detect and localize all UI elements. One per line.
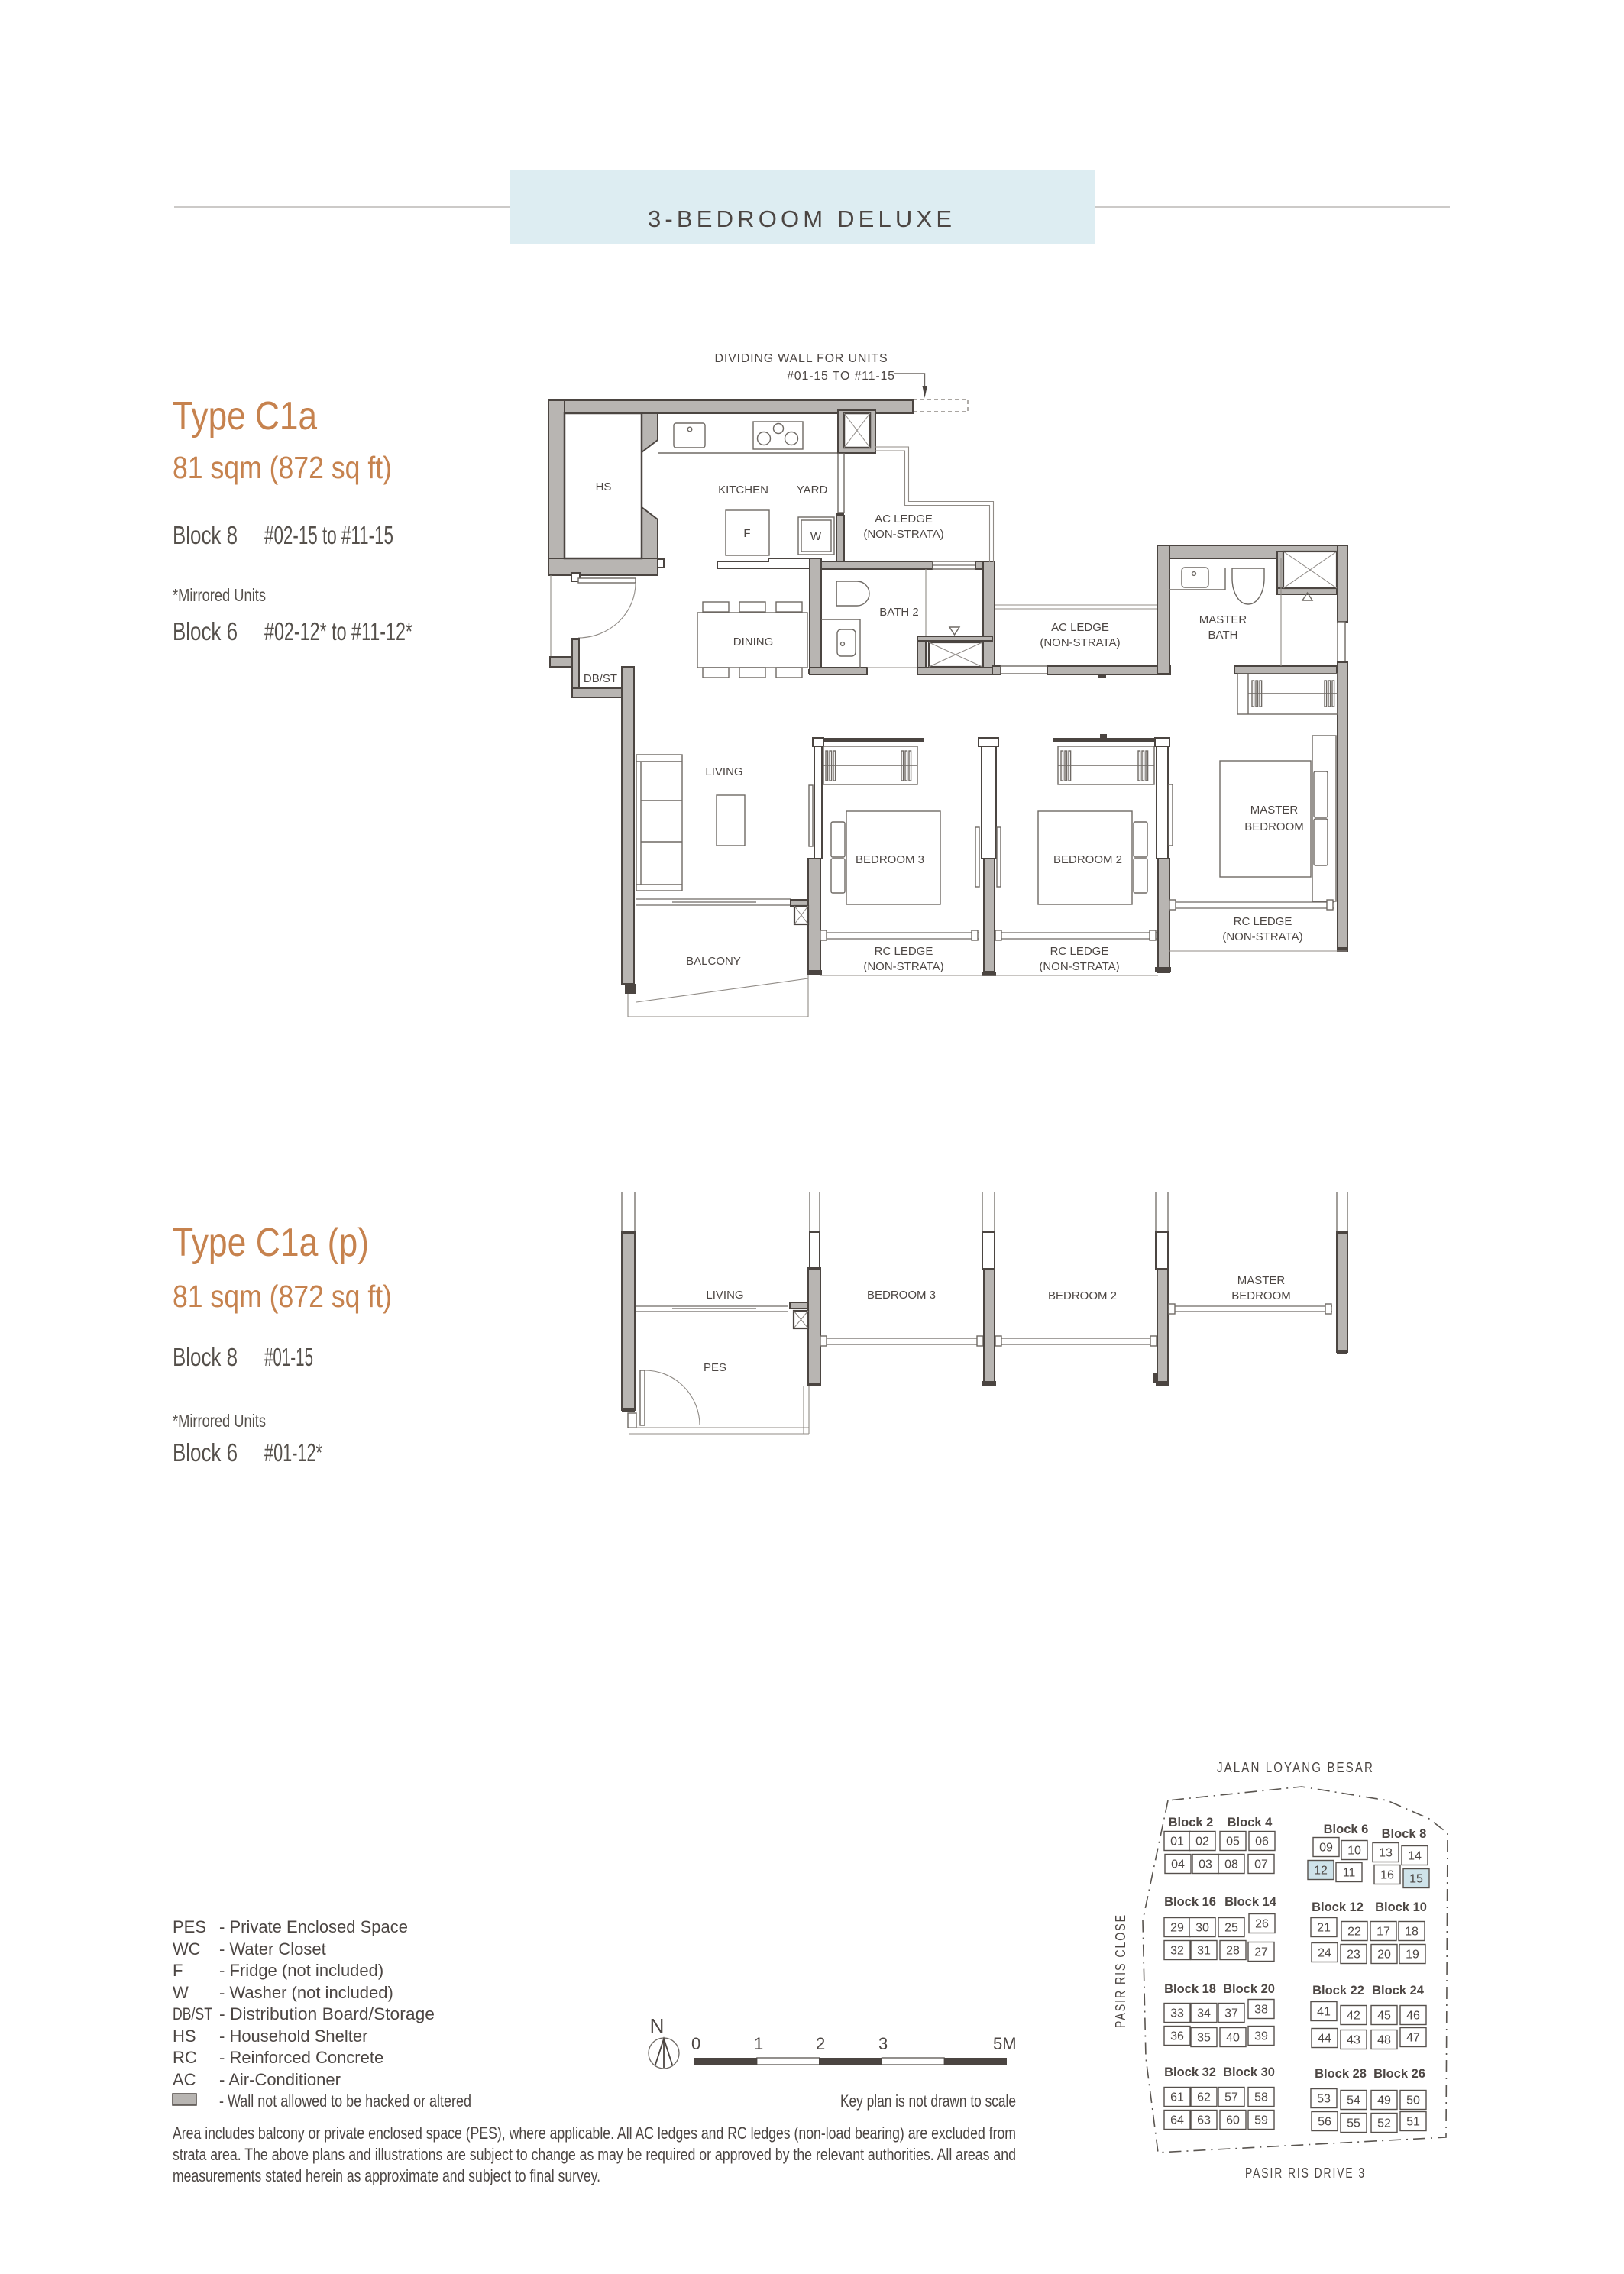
svg-text:56: 56 xyxy=(1318,2116,1331,2129)
svg-text:02: 02 xyxy=(1195,1836,1209,1849)
svg-text:PES: PES xyxy=(704,1361,726,1374)
svg-text:32: 32 xyxy=(1170,1945,1184,1958)
svg-text:KITCHEN: KITCHEN xyxy=(718,484,768,497)
svg-text:13: 13 xyxy=(1379,1847,1393,1860)
svg-text:(NON-STRATA): (NON-STRATA) xyxy=(1222,930,1302,943)
svg-text:42: 42 xyxy=(1347,2010,1360,2023)
svg-text:30: 30 xyxy=(1195,1922,1209,1935)
svg-text:07: 07 xyxy=(1254,1858,1268,1871)
svg-text:43: 43 xyxy=(1347,2034,1360,2047)
svg-text:strata area. The above plans a: strata area. The above plans and illustr… xyxy=(173,2145,1016,2164)
svg-text:- Washer (not included): - Washer (not included) xyxy=(219,1983,393,2002)
svg-text:09: 09 xyxy=(1319,1842,1333,1855)
svg-text:31: 31 xyxy=(1197,1945,1211,1958)
svg-text:39: 39 xyxy=(1254,2030,1268,2043)
svg-text:DB/ST: DB/ST xyxy=(173,2004,212,2023)
svg-text:LIVING: LIVING xyxy=(705,765,742,778)
svg-text:BATH 2: BATH 2 xyxy=(879,606,918,619)
svg-text:- Water Closet: - Water Closet xyxy=(219,1939,326,1959)
svg-text:46: 46 xyxy=(1406,2010,1420,2023)
svg-text:W: W xyxy=(173,1983,189,2002)
svg-text:21: 21 xyxy=(1317,1922,1331,1935)
svg-text:Key plan is not drawn to scale: Key plan is not drawn to scale xyxy=(840,2091,1016,2111)
svg-text:- Air-Conditioner: - Air-Conditioner xyxy=(219,2070,341,2089)
svg-text:40: 40 xyxy=(1226,2032,1240,2045)
svg-text:#01-12*: #01-12* xyxy=(264,1438,322,1467)
svg-text:LIVING: LIVING xyxy=(706,1289,743,1302)
svg-text:RC LEDGE: RC LEDGE xyxy=(1050,945,1109,958)
svg-text:59: 59 xyxy=(1254,2114,1268,2127)
svg-text:Block 22: Block 22 xyxy=(1312,1984,1364,1997)
svg-text:08: 08 xyxy=(1224,1858,1238,1871)
svg-text:#01-15: #01-15 xyxy=(264,1343,313,1371)
svg-text:AC LEDGE: AC LEDGE xyxy=(875,513,933,526)
svg-text:(NON-STRATA): (NON-STRATA) xyxy=(1040,636,1120,649)
svg-text:47: 47 xyxy=(1406,2032,1420,2045)
svg-text:36: 36 xyxy=(1170,2030,1184,2043)
svg-text:50: 50 xyxy=(1406,2094,1420,2107)
svg-text:28: 28 xyxy=(1226,1945,1240,1958)
svg-text:- Fridge (not included): - Fridge (not included) xyxy=(219,1961,383,1980)
svg-text:06: 06 xyxy=(1255,1836,1269,1849)
svg-text:64: 64 xyxy=(1170,2114,1184,2127)
svg-text:RC LEDGE: RC LEDGE xyxy=(1234,915,1292,928)
svg-text:#01-15 TO #11-15: #01-15 TO #11-15 xyxy=(787,370,895,383)
svg-text:24: 24 xyxy=(1318,1947,1331,1960)
svg-text:57: 57 xyxy=(1224,2091,1238,2104)
svg-text:3: 3 xyxy=(878,2034,888,2053)
svg-text:Block 6: Block 6 xyxy=(173,617,238,645)
svg-text:YARD: YARD xyxy=(797,484,828,497)
svg-text:5M: 5M xyxy=(993,2034,1017,2053)
svg-text:37: 37 xyxy=(1224,2007,1238,2020)
svg-text:WC: WC xyxy=(173,1939,201,1959)
svg-text:RC: RC xyxy=(173,2048,197,2067)
svg-text:BEDROOM 3: BEDROOM 3 xyxy=(867,1289,936,1302)
svg-text:Area includes balcony or priva: Area includes balcony or private enclose… xyxy=(173,2124,1016,2143)
svg-text:15: 15 xyxy=(1409,1873,1423,1886)
svg-text:20: 20 xyxy=(1377,1949,1391,1962)
svg-text:HS: HS xyxy=(173,2027,196,2046)
svg-text:11: 11 xyxy=(1343,1867,1356,1880)
svg-text:27: 27 xyxy=(1254,1946,1268,1959)
svg-text:F: F xyxy=(173,1961,183,1980)
svg-text:Block 8: Block 8 xyxy=(173,1343,238,1371)
svg-text:DIVIDING WALL FOR UNITS: DIVIDING WALL FOR UNITS xyxy=(714,352,888,365)
svg-text:54: 54 xyxy=(1347,2094,1360,2107)
svg-text:#02-12* to #11-12*: #02-12* to #11-12* xyxy=(264,617,412,645)
svg-text:(NON-STRATA): (NON-STRATA) xyxy=(863,528,943,541)
svg-text:measurements stated herein as: measurements stated herein as approximat… xyxy=(173,2166,600,2185)
svg-text:33: 33 xyxy=(1170,2007,1184,2020)
svg-text:53: 53 xyxy=(1317,2093,1331,2106)
svg-text:03: 03 xyxy=(1199,1858,1212,1871)
svg-text:12: 12 xyxy=(1314,1865,1328,1878)
svg-text:Block 2: Block 2 xyxy=(1169,1816,1214,1829)
svg-text:BALCONY: BALCONY xyxy=(686,955,741,968)
svg-text:(NON-STRATA): (NON-STRATA) xyxy=(863,960,943,973)
svg-text:W: W xyxy=(810,530,822,543)
svg-text:MASTER: MASTER xyxy=(1237,1274,1286,1287)
svg-text:BEDROOM: BEDROOM xyxy=(1231,1289,1291,1302)
svg-text:05: 05 xyxy=(1226,1836,1240,1849)
svg-text:Block 8: Block 8 xyxy=(173,521,238,549)
svg-text:*Mirrored Units: *Mirrored Units xyxy=(173,585,266,605)
svg-text:51: 51 xyxy=(1406,2116,1420,2129)
svg-text:HS: HS xyxy=(596,480,612,493)
svg-text:38: 38 xyxy=(1254,2004,1268,2017)
svg-text:Block 26: Block 26 xyxy=(1373,2067,1425,2081)
svg-text:RC LEDGE: RC LEDGE xyxy=(875,945,933,958)
svg-text:29: 29 xyxy=(1170,1922,1184,1935)
svg-text:81 sqm (872 sq ft): 81 sqm (872 sq ft) xyxy=(173,450,392,485)
svg-text:Block 6: Block 6 xyxy=(1324,1823,1369,1836)
svg-text:26: 26 xyxy=(1255,1918,1269,1931)
svg-text:BATH: BATH xyxy=(1208,629,1238,642)
svg-text:17: 17 xyxy=(1377,1926,1390,1939)
svg-text:BEDROOM 3: BEDROOM 3 xyxy=(856,853,924,866)
svg-text:BEDROOM: BEDROOM xyxy=(1244,820,1304,833)
svg-text:- Distribution Board/Storage: - Distribution Board/Storage xyxy=(219,2004,435,2023)
svg-text:0: 0 xyxy=(691,2034,700,2053)
svg-text:- Private Enclosed Space: - Private Enclosed Space xyxy=(219,1917,408,1936)
svg-text:Block 20: Block 20 xyxy=(1223,1982,1275,1996)
svg-text:DINING: DINING xyxy=(733,636,774,649)
svg-text:62: 62 xyxy=(1197,2091,1211,2104)
svg-text:48: 48 xyxy=(1377,2034,1391,2047)
svg-text:DB/ST: DB/ST xyxy=(584,672,617,685)
svg-text:60: 60 xyxy=(1226,2114,1240,2127)
svg-text:19: 19 xyxy=(1406,1949,1419,1962)
svg-text:44: 44 xyxy=(1318,2033,1331,2046)
svg-text:MASTER: MASTER xyxy=(1250,804,1299,817)
svg-text:01: 01 xyxy=(1170,1836,1184,1849)
svg-text:Block 32: Block 32 xyxy=(1164,2065,1216,2079)
svg-text:N: N xyxy=(650,2014,665,2037)
svg-text:Block 30: Block 30 xyxy=(1223,2065,1275,2079)
svg-text:(NON-STRATA): (NON-STRATA) xyxy=(1039,960,1119,973)
svg-text:61: 61 xyxy=(1170,2091,1184,2104)
svg-text:35: 35 xyxy=(1197,2032,1211,2045)
svg-text:Block 12: Block 12 xyxy=(1312,1900,1364,1914)
svg-text:49: 49 xyxy=(1377,2094,1391,2107)
svg-text:58: 58 xyxy=(1254,2091,1268,2104)
svg-text:81 sqm (872 sq ft): 81 sqm (872 sq ft) xyxy=(173,1279,392,1314)
svg-text:41: 41 xyxy=(1317,2006,1331,2019)
svg-text:55: 55 xyxy=(1347,2117,1360,2130)
svg-text:45: 45 xyxy=(1377,2010,1391,2023)
svg-text:#02-15 to #11-15: #02-15 to #11-15 xyxy=(264,521,393,549)
svg-text:10: 10 xyxy=(1347,1845,1361,1858)
svg-text:Block 28: Block 28 xyxy=(1315,2067,1367,2081)
svg-text:Type C1a: Type C1a xyxy=(173,394,317,438)
svg-text:Block 24: Block 24 xyxy=(1372,1984,1425,1997)
svg-text:34: 34 xyxy=(1197,2007,1211,2020)
svg-text:52: 52 xyxy=(1377,2117,1391,2130)
svg-text:Block 8: Block 8 xyxy=(1382,1827,1427,1841)
svg-text:23: 23 xyxy=(1347,1949,1360,1962)
svg-text:PASIR RIS DRIVE 3: PASIR RIS DRIVE 3 xyxy=(1245,2166,1366,2181)
svg-text:F: F xyxy=(743,527,750,540)
svg-text:- Reinforced Concrete: - Reinforced Concrete xyxy=(219,2048,383,2067)
svg-text:16: 16 xyxy=(1380,1869,1394,1882)
svg-text:Type C1a (p): Type C1a (p) xyxy=(173,1221,369,1265)
svg-text:BEDROOM 2: BEDROOM 2 xyxy=(1053,853,1122,866)
svg-text:Block 18: Block 18 xyxy=(1164,1982,1216,1996)
svg-text:MASTER: MASTER xyxy=(1199,613,1247,626)
svg-text:PASIR RIS CLOSE: PASIR RIS CLOSE xyxy=(1113,1913,1128,2028)
svg-text:JALAN LOYANG BESAR: JALAN LOYANG BESAR xyxy=(1217,1760,1374,1775)
svg-text:*Mirrored Units: *Mirrored Units xyxy=(173,1411,266,1431)
svg-text:3-BEDROOM DELUXE: 3-BEDROOM DELUXE xyxy=(648,205,959,232)
svg-text:BEDROOM 2: BEDROOM 2 xyxy=(1048,1289,1117,1302)
svg-text:- Wall not allowed to be hacke: - Wall not allowed to be hacked or alter… xyxy=(219,2091,471,2111)
svg-text:04: 04 xyxy=(1171,1858,1185,1871)
svg-text:- Household Shelter: - Household Shelter xyxy=(219,2027,367,2046)
svg-text:1: 1 xyxy=(754,2034,763,2053)
svg-text:Block 4: Block 4 xyxy=(1228,1816,1273,1829)
svg-text:Block 6: Block 6 xyxy=(173,1438,238,1467)
svg-text:Block 14: Block 14 xyxy=(1224,1895,1277,1909)
svg-text:2: 2 xyxy=(816,2034,825,2053)
svg-text:Block 10: Block 10 xyxy=(1375,1900,1427,1914)
svg-text:AC: AC xyxy=(173,2070,196,2089)
svg-text:18: 18 xyxy=(1405,1926,1419,1939)
svg-text:63: 63 xyxy=(1197,2114,1211,2127)
svg-text:AC LEDGE: AC LEDGE xyxy=(1051,621,1109,634)
svg-text:Block 16: Block 16 xyxy=(1164,1895,1216,1909)
svg-text:14: 14 xyxy=(1408,1850,1422,1863)
svg-text:PES: PES xyxy=(173,1917,206,1936)
svg-text:25: 25 xyxy=(1224,1922,1238,1935)
svg-text:22: 22 xyxy=(1347,1926,1361,1939)
